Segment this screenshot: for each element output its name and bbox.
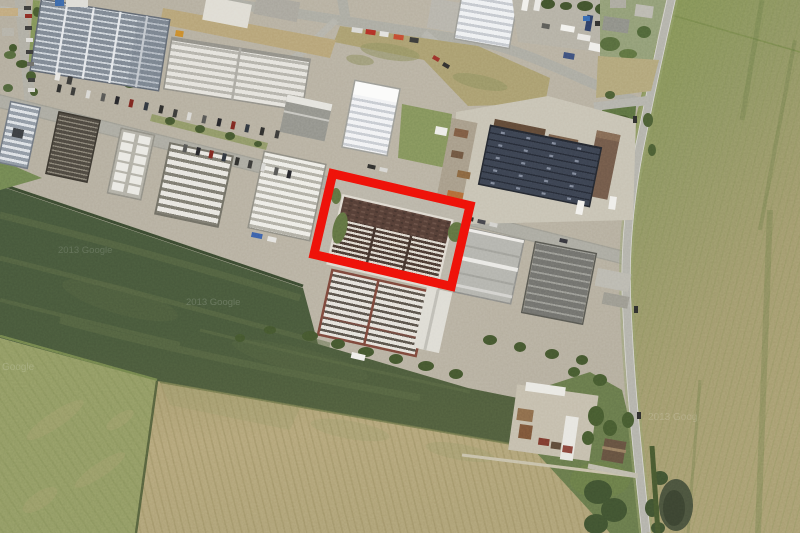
svg-text:2013 Google: 2013 Google [186,297,240,308]
svg-text:2013 Goog: 2013 Goog [648,412,698,423]
svg-text:2013 Google: 2013 Google [58,245,112,256]
svg-text:Google: Google [2,362,35,373]
